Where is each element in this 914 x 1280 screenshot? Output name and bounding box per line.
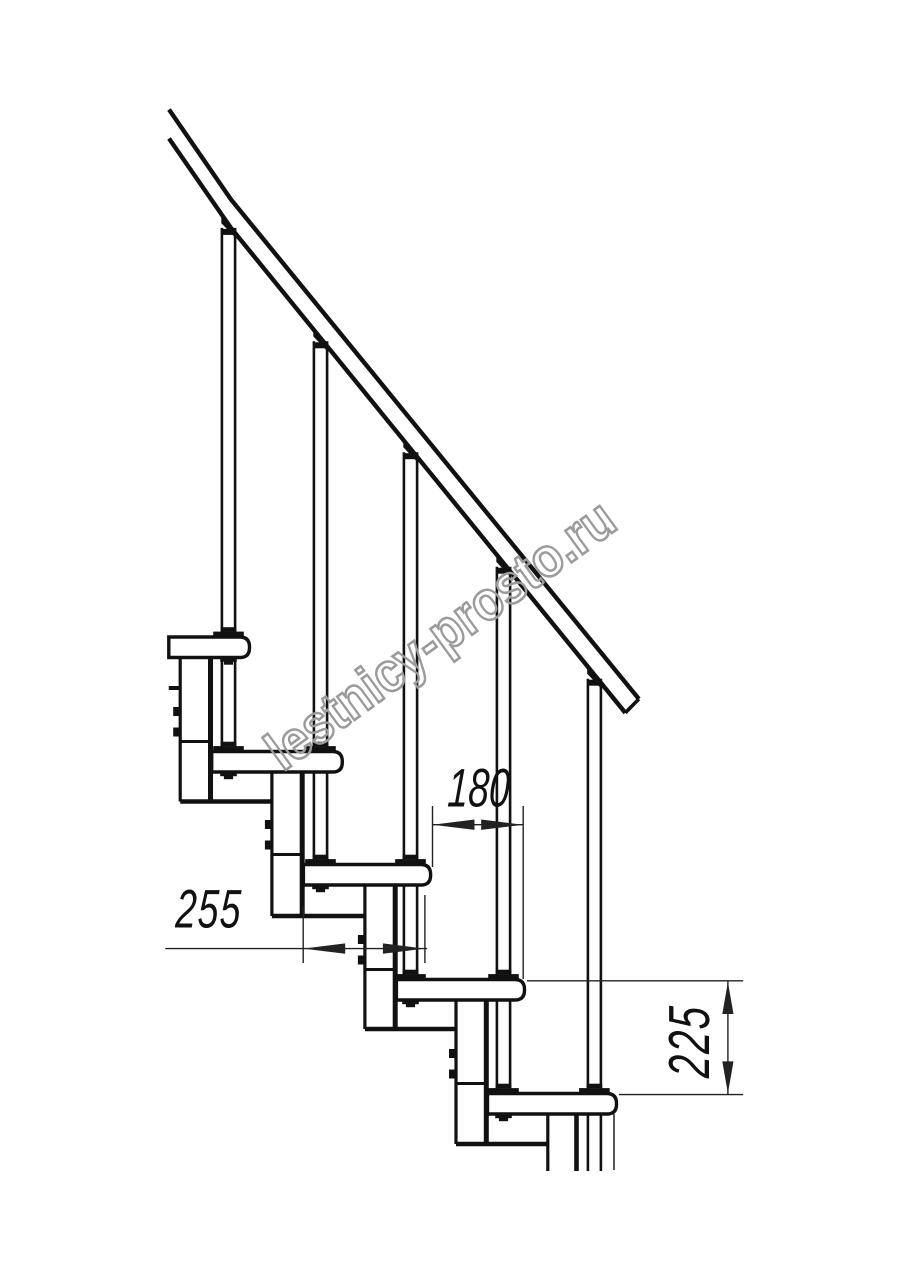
svg-text:180: 180 [446,758,511,819]
svg-text:255: 255 [174,879,244,940]
svg-text:225: 225 [656,1003,721,1080]
svg-text:lestnicy-prosto.ru: lestnicy-prosto.ru [254,488,627,782]
